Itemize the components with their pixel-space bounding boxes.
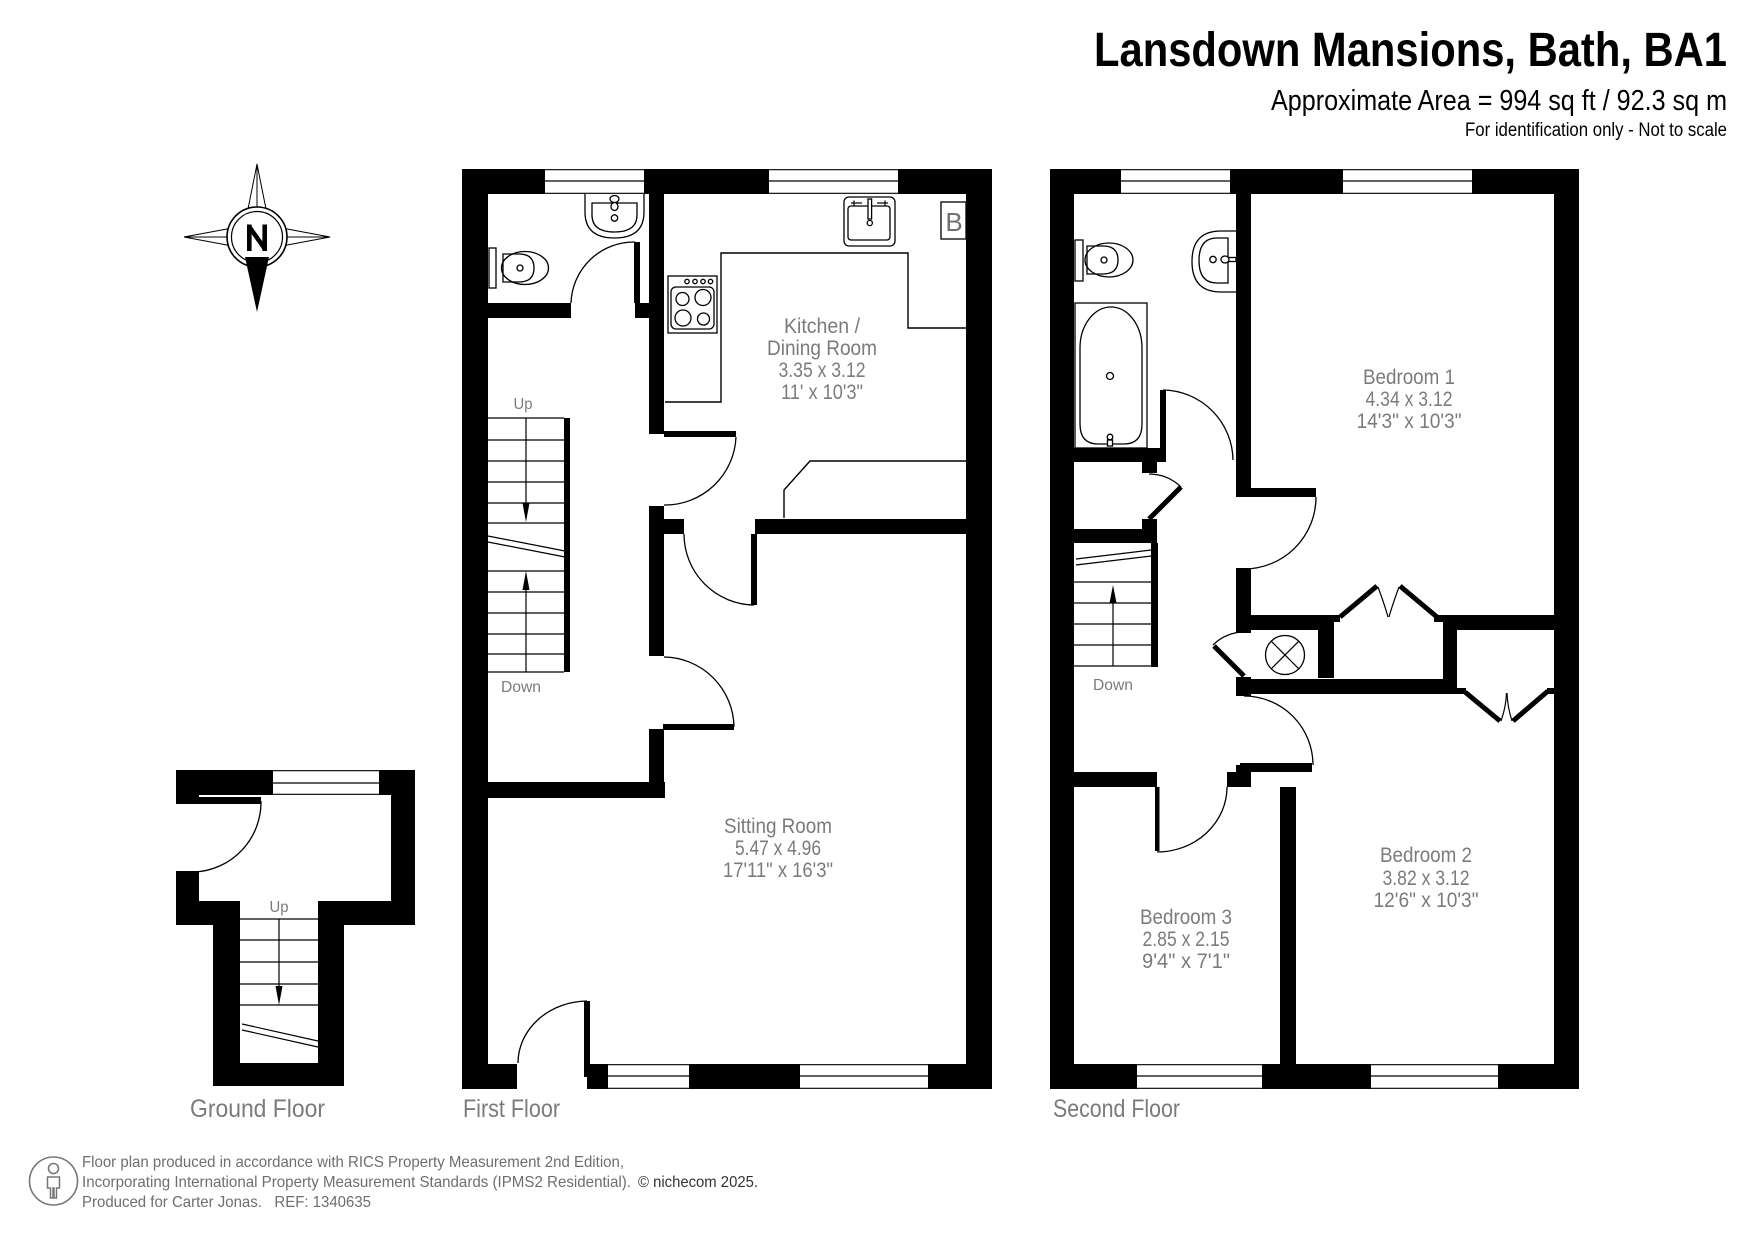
svg-text:3.35 x 3.12: 3.35 x 3.12 (779, 359, 866, 382)
svg-text:Lansdown Mansions, Bath, BA1: Lansdown Mansions, Bath, BA1 (1094, 24, 1727, 77)
svg-text:Ground Floor: Ground Floor (190, 1095, 325, 1123)
svg-text:9'4" x 7'1": 9'4" x 7'1" (1142, 950, 1230, 973)
svg-text:© nichecom 2025.: © nichecom 2025. (638, 1174, 758, 1191)
svg-text:12'6" x 10'3": 12'6" x 10'3" (1374, 889, 1479, 912)
svg-text:5.47 x 4.96: 5.47 x 4.96 (735, 837, 821, 860)
svg-text:Dining Room: Dining Room (767, 337, 877, 360)
svg-text:Sitting Room: Sitting Room (724, 815, 832, 838)
svg-text:Second Floor: Second Floor (1053, 1095, 1180, 1123)
svg-text:Up: Up (270, 899, 289, 916)
svg-text:4.34 x 3.12: 4.34 x 3.12 (1366, 388, 1453, 411)
svg-text:For identification only - Not: For identification only - Not to scale (1465, 120, 1727, 141)
svg-text:Approximate Area = 994 sq ft /: Approximate Area = 994 sq ft / 92.3 sq m (1271, 85, 1727, 117)
svg-text:Floor plan produced in accorda: Floor plan produced in accordance with R… (82, 1154, 624, 1171)
svg-text:Bedroom 3: Bedroom 3 (1140, 906, 1232, 929)
svg-text:Up: Up (514, 396, 533, 413)
svg-text:B: B (945, 207, 962, 237)
svg-text:Kitchen /: Kitchen / (784, 315, 860, 338)
svg-text:Bedroom 1: Bedroom 1 (1363, 366, 1455, 389)
svg-text:Down: Down (1093, 677, 1133, 694)
svg-text:17'11" x 16'3": 17'11" x 16'3" (723, 859, 833, 882)
svg-text:Incorporating International Pr: Incorporating International Property Mea… (82, 1174, 631, 1191)
svg-text:Bedroom 2: Bedroom 2 (1380, 844, 1472, 867)
svg-text:2.85 x 2.15: 2.85 x 2.15 (1143, 928, 1230, 951)
svg-text:Down: Down (501, 679, 541, 696)
svg-text:3.82 x 3.12: 3.82 x 3.12 (1383, 867, 1470, 890)
svg-text:14'3" x 10'3": 14'3" x 10'3" (1357, 410, 1462, 433)
svg-text:11' x 10'3": 11' x 10'3" (781, 381, 863, 404)
svg-text:Produced for Carter Jonas. R: Produced for Carter Jonas. REF: 1340635 (82, 1194, 371, 1211)
svg-text:First Floor: First Floor (463, 1095, 560, 1123)
